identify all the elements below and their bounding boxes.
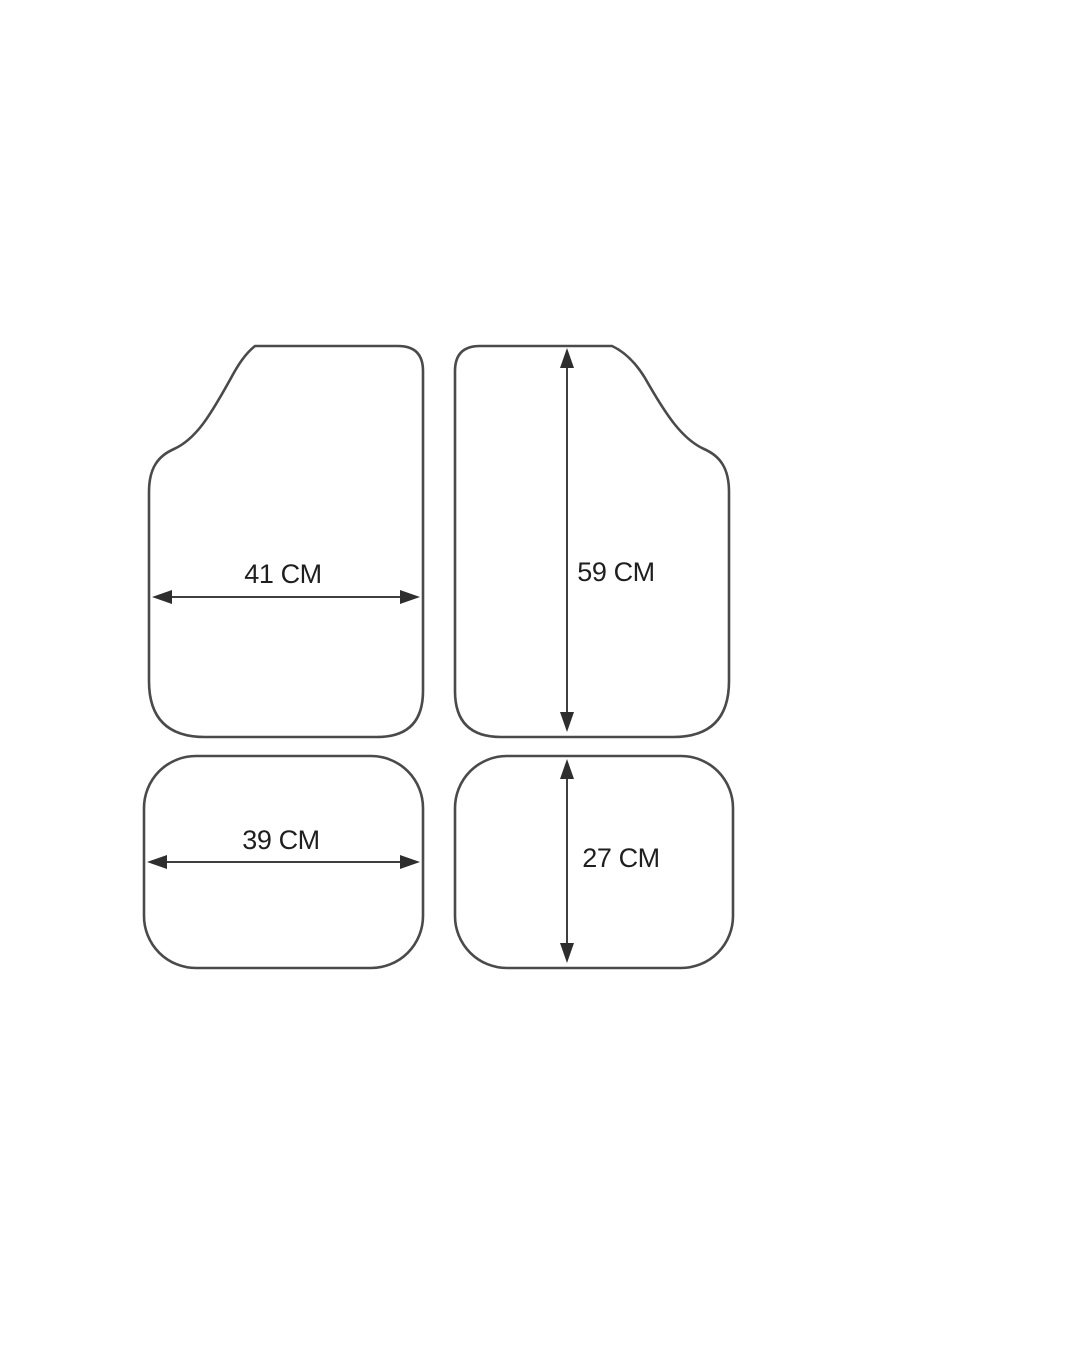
front-right-mat-outline — [455, 346, 729, 737]
front-right-height-arrow — [560, 348, 574, 732]
mats-outline-svg — [0, 0, 1080, 1350]
front-left-width-label: 41 CM — [218, 559, 348, 589]
rear-right-height-label: 27 CM — [556, 843, 686, 873]
front-left-mat-outline — [149, 346, 423, 737]
front-right-height-label: 59 CM — [551, 557, 681, 587]
rear-left-width-arrow — [147, 855, 420, 869]
mat-dimensions-diagram: 41 CM 59 CM 39 CM 27 CM — [0, 0, 1080, 1350]
front-left-width-arrow — [152, 590, 420, 604]
rear-left-width-label: 39 CM — [216, 825, 346, 855]
